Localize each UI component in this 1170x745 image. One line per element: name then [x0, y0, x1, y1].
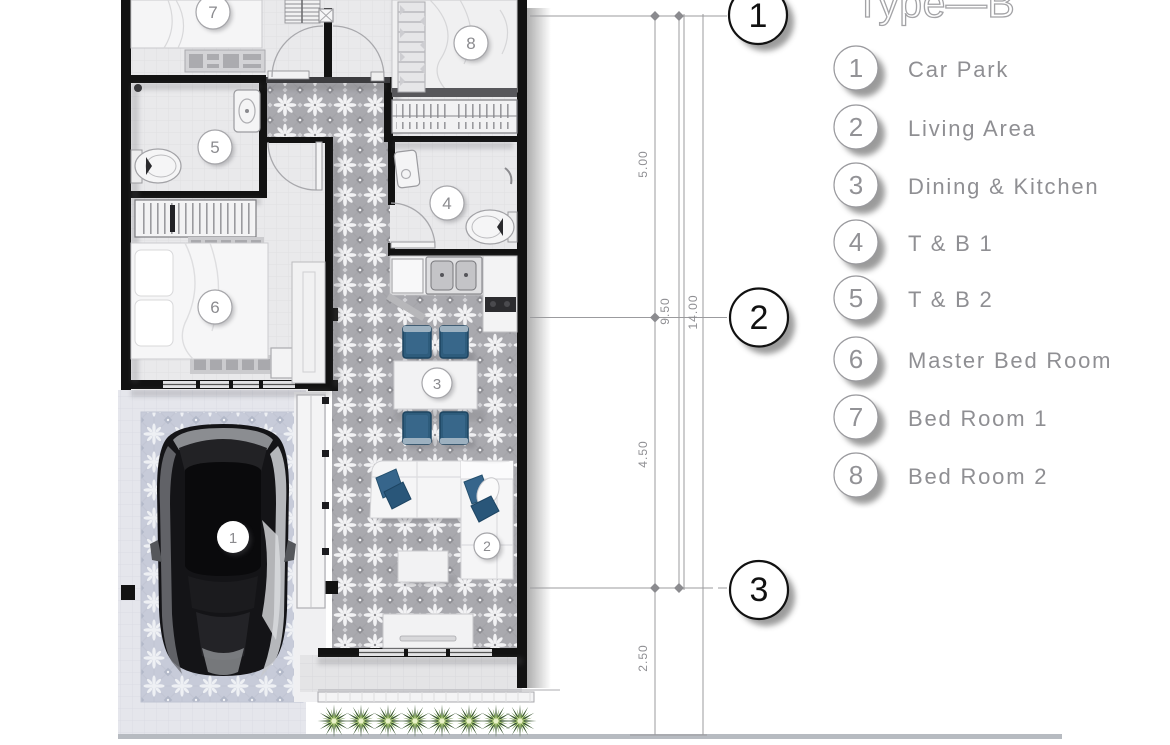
- svg-text:9.50: 9.50: [658, 297, 672, 324]
- svg-text:Type—B: Type—B: [855, 0, 1015, 26]
- svg-text:Dining & Kitchen: Dining & Kitchen: [908, 174, 1099, 199]
- svg-text:Master Bed Room: Master Bed Room: [908, 348, 1112, 373]
- svg-text:2: 2: [483, 538, 491, 554]
- svg-text:5: 5: [849, 283, 863, 313]
- svg-text:Bed Room 1: Bed Room 1: [908, 406, 1048, 431]
- svg-text:1: 1: [749, 0, 768, 35]
- svg-text:6: 6: [849, 344, 863, 374]
- svg-text:8: 8: [849, 460, 863, 490]
- svg-text:6: 6: [210, 298, 219, 317]
- svg-text:7: 7: [849, 402, 863, 432]
- svg-text:4.50: 4.50: [636, 440, 650, 467]
- svg-text:2.50: 2.50: [636, 644, 650, 671]
- svg-text:Car Park: Car Park: [908, 57, 1009, 82]
- svg-text:T & B 2: T & B 2: [908, 287, 994, 312]
- svg-text:1: 1: [849, 53, 863, 83]
- svg-text:8: 8: [466, 34, 475, 53]
- svg-text:3: 3: [849, 170, 863, 200]
- svg-text:3: 3: [433, 376, 441, 393]
- svg-text:14.00: 14.00: [686, 294, 700, 329]
- svg-text:2: 2: [849, 112, 863, 142]
- svg-text:5.00: 5.00: [636, 150, 650, 177]
- svg-text:Bed Room 2: Bed Room 2: [908, 464, 1048, 489]
- svg-text:5: 5: [210, 138, 219, 157]
- svg-text:1: 1: [229, 530, 237, 547]
- svg-text:2: 2: [750, 299, 769, 337]
- svg-text:3: 3: [750, 571, 769, 609]
- svg-text:7: 7: [208, 3, 217, 22]
- svg-text:4: 4: [442, 194, 451, 213]
- svg-text:4: 4: [849, 227, 863, 257]
- svg-text:T & B 1: T & B 1: [908, 231, 994, 256]
- svg-text:Living Area: Living Area: [908, 116, 1037, 141]
